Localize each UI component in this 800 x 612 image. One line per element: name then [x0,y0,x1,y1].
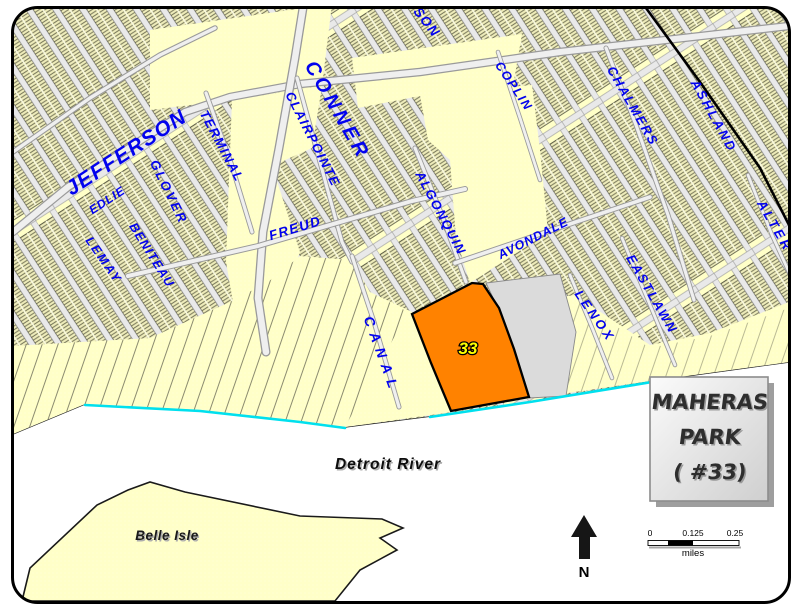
map-canvas: JEFFERSON CONNER TERMINAL CLAIRPOINTE GL… [0,0,800,612]
north-label: N [579,564,590,581]
scale-tick-end: 0.25 [727,528,744,538]
scale-unit-label: miles [682,548,704,559]
svg-text:Detroit River: Detroit River [335,456,441,473]
river-label: Detroit River Detroit River [335,456,443,475]
park-number-label: 33 [459,339,478,358]
title-line-3: ( #33) [672,459,748,484]
title-box: MAHERAS MAHERAS PARK PARK ( #33) ( #33) [650,377,774,507]
island-label: Belle Isle Belle Isle [135,528,200,544]
svg-text:Belle Isle: Belle Isle [135,528,199,543]
scale-tick-mid: 0.125 [682,528,704,538]
map-content: JEFFERSON CONNER TERMINAL CLAIRPOINTE GL… [13,4,796,602]
title-line-2: PARK [677,424,743,449]
title-line-1: MAHERAS [650,389,770,414]
scale-tick-start: 0 [648,528,653,538]
